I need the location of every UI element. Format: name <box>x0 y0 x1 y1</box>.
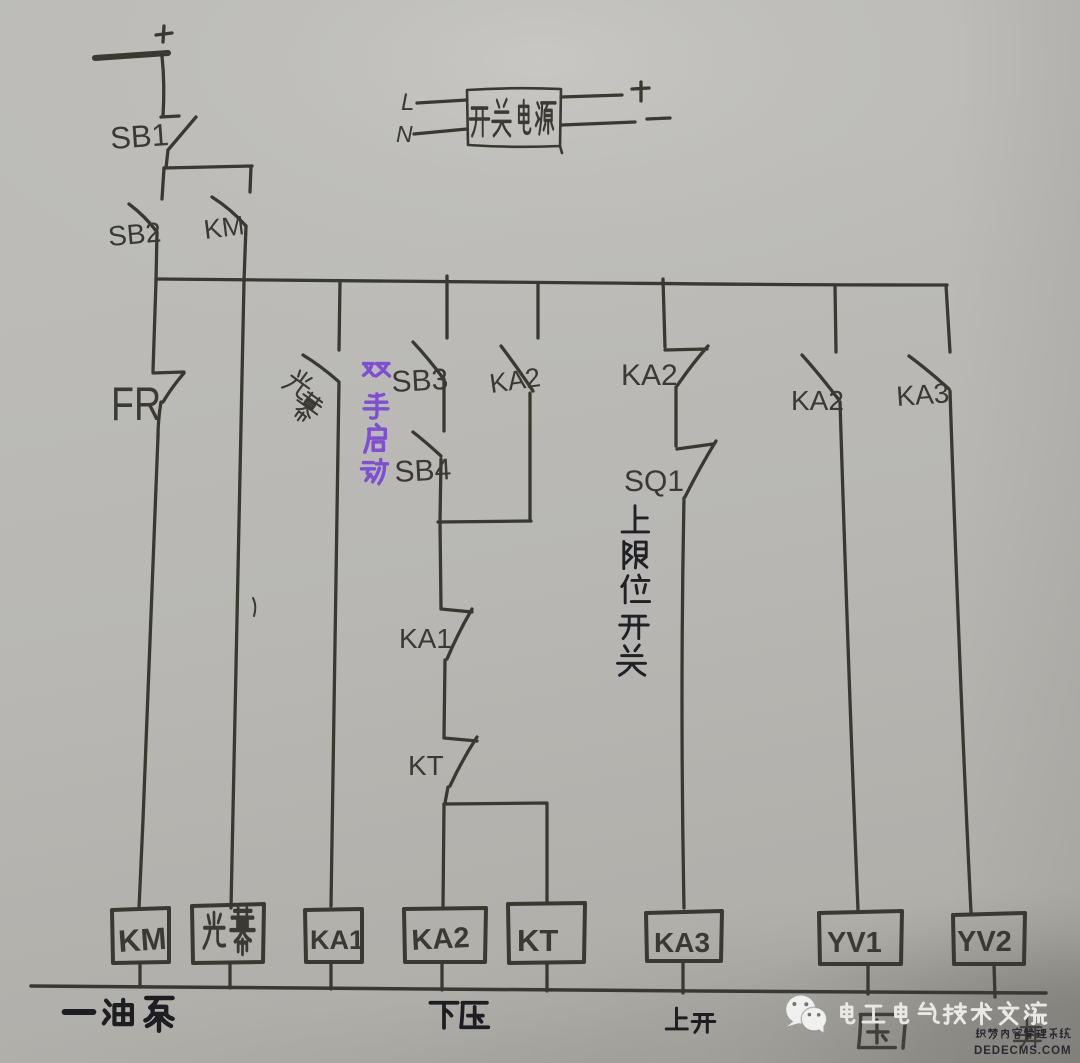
svg-text:KA3: KA3 <box>895 377 950 412</box>
svg-text:SB3: SB3 <box>391 363 449 399</box>
svg-text:YV1: YV1 <box>827 927 882 959</box>
svg-text:SQ1: SQ1 <box>624 465 684 498</box>
svg-text:YV2: YV2 <box>957 926 1012 958</box>
svg-text:KA3: KA3 <box>654 927 710 958</box>
svg-text:KM: KM <box>202 210 246 245</box>
svg-text:FR: FR <box>111 378 161 431</box>
svg-text:KA1: KA1 <box>399 623 452 654</box>
svg-text:SB2: SB2 <box>107 216 162 251</box>
svg-text:N: N <box>396 121 413 147</box>
svg-text:KM: KM <box>117 921 168 959</box>
svg-text:KT: KT <box>408 750 444 781</box>
svg-text:L: L <box>401 89 414 116</box>
svg-text:KA2: KA2 <box>411 922 471 957</box>
svg-text:SB1: SB1 <box>109 117 170 156</box>
svg-text:KA2: KA2 <box>791 385 844 416</box>
svg-text:SB4: SB4 <box>394 453 452 489</box>
svg-text:KT: KT <box>517 923 558 958</box>
svg-text:KA1: KA1 <box>310 925 364 955</box>
svg-text:KA2: KA2 <box>621 359 678 392</box>
svg-text:DEDECMS.COM: DEDECMS.COM <box>974 1045 1071 1057</box>
